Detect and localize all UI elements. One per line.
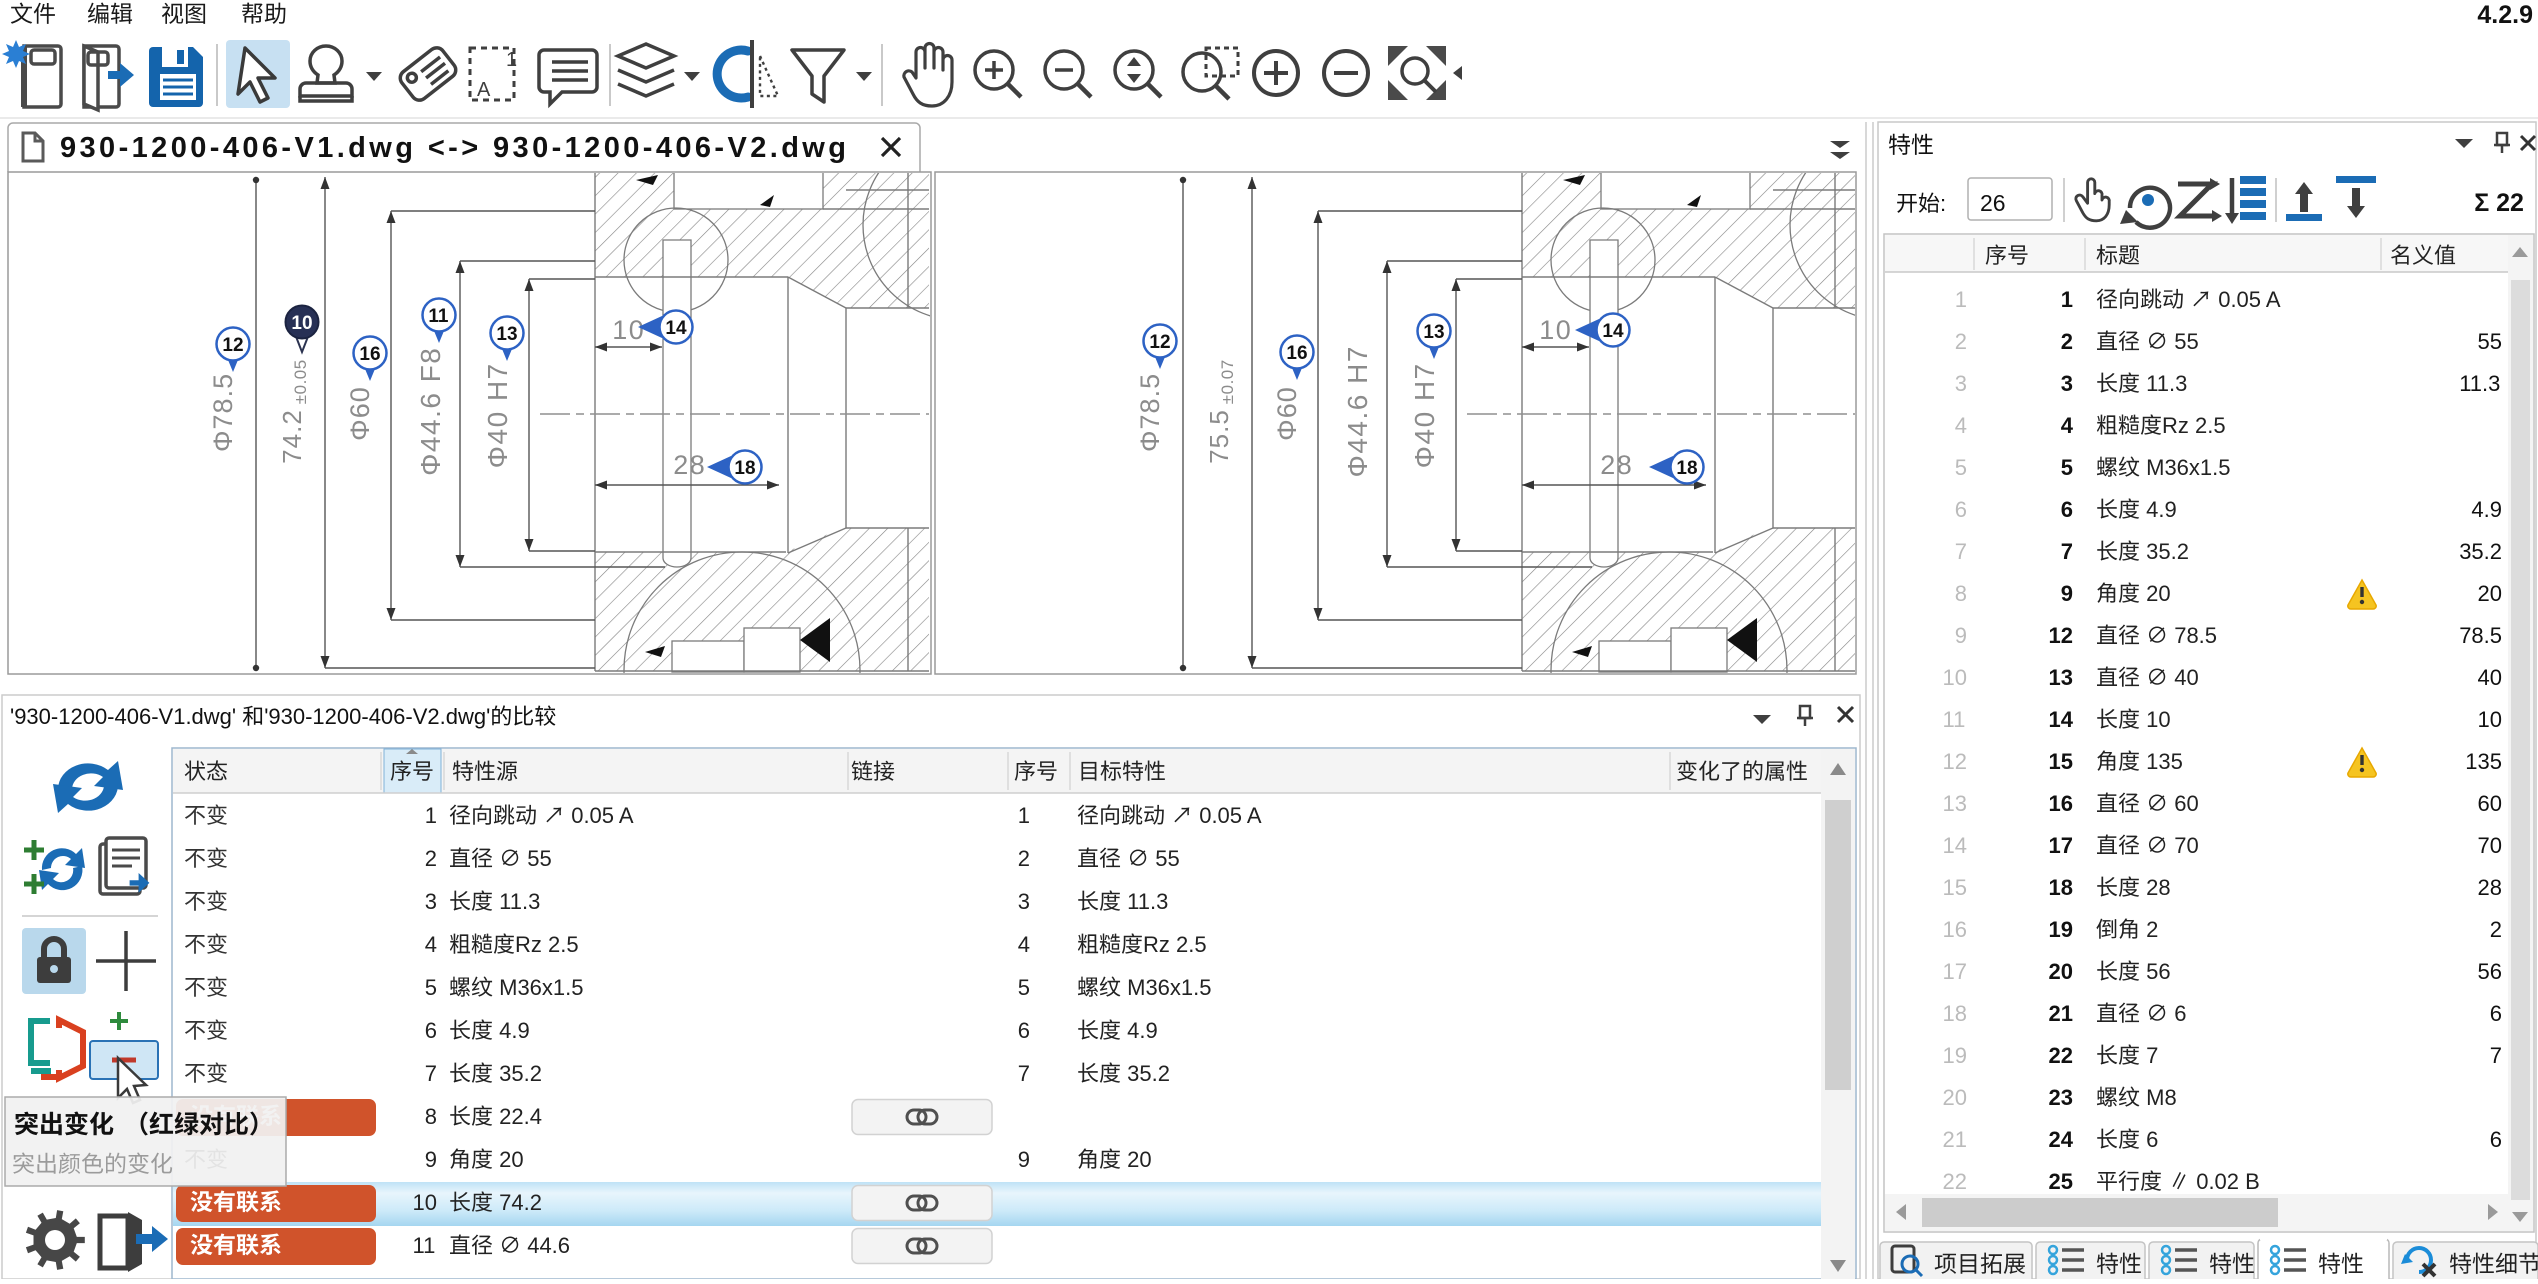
svg-text:75.5: 75.5: [1204, 409, 1234, 464]
svg-text:7: 7: [2140, 1043, 2158, 1068]
svg-text:13: 13: [2049, 665, 2073, 690]
svg-text:60: 60: [2478, 791, 2502, 816]
svg-text:2: 2: [2490, 917, 2502, 942]
svg-text:35.2: 35.2: [2140, 539, 2189, 564]
svg-text:10: 10: [1943, 665, 1967, 690]
svg-text:20: 20: [2478, 581, 2502, 606]
svg-text:6: 6: [425, 1018, 437, 1043]
svg-text:11.3: 11.3: [2459, 371, 2500, 396]
svg-text:6: 6: [1955, 497, 1967, 522]
svg-text:Φ60: Φ60: [345, 386, 375, 441]
svg-text:Rz 2.5: Rz 2.5: [515, 932, 579, 957]
svg-text:14: 14: [2049, 707, 2074, 732]
svg-text:35.2: 35.2: [2459, 539, 2502, 564]
svg-text:10: 10: [2478, 707, 2502, 732]
svg-text:Φ44.6 F8: Φ44.6 F8: [415, 347, 446, 476]
svg-text:19: 19: [2049, 917, 2073, 942]
svg-text:6: 6: [1018, 1018, 1030, 1043]
svg-text:14: 14: [1602, 321, 1624, 342]
svg-text:11: 11: [428, 306, 449, 327]
svg-text:22.4: 22.4: [493, 1104, 542, 1129]
svg-text:1: 1: [425, 803, 437, 828]
svg-text:55: 55: [2168, 329, 2199, 354]
svg-text:4.2.9: 4.2.9: [2477, 1, 2533, 29]
svg-text:5: 5: [2061, 455, 2073, 480]
svg-text:18: 18: [2049, 875, 2073, 900]
svg-text:4.9: 4.9: [2471, 497, 2502, 522]
svg-text:7: 7: [1018, 1061, 1030, 1086]
svg-text:10: 10: [2140, 707, 2171, 732]
svg-text:0.02 B: 0.02 B: [2190, 1169, 2260, 1194]
svg-text:6: 6: [2168, 1001, 2186, 1026]
svg-text:0.05 A: 0.05 A: [1193, 803, 1262, 828]
svg-text:2: 2: [1955, 329, 1967, 354]
svg-text:Rz 2.5: Rz 2.5: [1143, 932, 1207, 957]
svg-text:1: 1: [506, 49, 517, 71]
svg-text:3: 3: [1018, 889, 1030, 914]
svg-text:60: 60: [2168, 791, 2199, 816]
svg-text:74.2: 74.2: [277, 409, 307, 464]
svg-text:11: 11: [1943, 707, 1966, 732]
svg-text:56: 56: [2478, 959, 2502, 984]
svg-text:18: 18: [1676, 458, 1697, 479]
svg-text:5: 5: [1955, 455, 1967, 480]
svg-text:3: 3: [1955, 371, 1967, 396]
svg-text:12: 12: [222, 335, 243, 356]
svg-text:40: 40: [2478, 665, 2502, 690]
svg-text:2: 2: [425, 846, 437, 871]
svg-text:4.9: 4.9: [493, 1018, 530, 1043]
svg-text:28: 28: [2140, 875, 2171, 900]
svg-text:1: 1: [1955, 287, 1967, 312]
svg-text:17: 17: [2049, 833, 2073, 858]
svg-text:16: 16: [359, 344, 380, 365]
svg-text:70: 70: [2478, 833, 2502, 858]
svg-text:55: 55: [521, 846, 552, 871]
svg-text:M8: M8: [2140, 1085, 2177, 1110]
svg-text:13: 13: [1423, 322, 1444, 343]
svg-text:21: 21: [1943, 1127, 1967, 1152]
svg-text:28: 28: [1600, 450, 1633, 480]
svg-text:20: 20: [2140, 581, 2171, 606]
svg-text:5: 5: [425, 975, 437, 1000]
svg-text:18: 18: [1943, 1001, 1967, 1026]
svg-text:8: 8: [1955, 581, 1967, 606]
svg-text:3: 3: [425, 889, 437, 914]
svg-text:16: 16: [1943, 917, 1967, 942]
svg-text:28: 28: [673, 450, 706, 480]
svg-text:12: 12: [2049, 623, 2073, 648]
svg-text:Rz 2.5: Rz 2.5: [2162, 413, 2226, 438]
svg-text:±0.05: ±0.05: [291, 359, 310, 404]
svg-text:±0.07: ±0.07: [1218, 359, 1237, 404]
svg-text:2: 2: [2061, 329, 2073, 354]
svg-text:0.05 A: 0.05 A: [2212, 287, 2281, 312]
svg-text:Φ78.5: Φ78.5: [1135, 373, 1165, 452]
svg-text:17: 17: [1943, 959, 1967, 984]
svg-text:78.5: 78.5: [2459, 623, 2502, 648]
svg-text:1: 1: [2061, 287, 2073, 312]
svg-text:28: 28: [2478, 875, 2502, 900]
svg-text:A: A: [477, 79, 491, 101]
svg-text:'930-1200-406-V1.dwg': '930-1200-406-V1.dwg': [10, 704, 242, 729]
svg-text:56: 56: [2140, 959, 2171, 984]
svg-text:6: 6: [2061, 497, 2073, 522]
svg-text:9: 9: [1018, 1147, 1030, 1172]
svg-text:135: 135: [2465, 749, 2502, 774]
svg-text:11: 11: [413, 1233, 436, 1258]
svg-text:26: 26: [1980, 190, 2006, 216]
svg-text:35.2: 35.2: [1121, 1061, 1170, 1086]
svg-text:11.3: 11.3: [1121, 889, 1168, 914]
svg-text:4.9: 4.9: [1121, 1018, 1158, 1043]
svg-text:20: 20: [1943, 1085, 1967, 1110]
svg-text:135: 135: [2140, 749, 2183, 774]
svg-text:22: 22: [1943, 1169, 1967, 1194]
svg-text:14: 14: [1943, 833, 1967, 858]
svg-text:19: 19: [1943, 1043, 1967, 1068]
svg-text:16: 16: [1286, 343, 1307, 364]
svg-text:12: 12: [1149, 332, 1170, 353]
svg-text:10: 10: [291, 313, 312, 334]
svg-text:4: 4: [1018, 932, 1030, 957]
svg-text:40: 40: [2168, 665, 2199, 690]
svg-text:78.5: 78.5: [2168, 623, 2217, 648]
svg-text:'930-1200-406-V2.dwg': '930-1200-406-V2.dwg': [264, 704, 490, 729]
svg-text:15: 15: [2049, 749, 2073, 774]
svg-text:55: 55: [1149, 846, 1180, 871]
svg-text:7: 7: [2061, 539, 2073, 564]
svg-text:2: 2: [1018, 846, 1030, 871]
svg-text:20: 20: [493, 1147, 524, 1172]
svg-text:0.05 A: 0.05 A: [565, 803, 634, 828]
svg-text:11.3: 11.3: [493, 889, 540, 914]
svg-text::: :: [1940, 191, 1946, 216]
svg-text:4: 4: [2061, 413, 2074, 438]
svg-text:18: 18: [734, 458, 755, 479]
svg-text:44.6: 44.6: [521, 1233, 570, 1258]
svg-text:23: 23: [2049, 1085, 2073, 1110]
svg-text:35.2: 35.2: [493, 1061, 542, 1086]
svg-text:13: 13: [1943, 791, 1967, 816]
svg-text:8: 8: [425, 1104, 437, 1129]
svg-text:15: 15: [1943, 875, 1967, 900]
svg-text:14: 14: [665, 318, 687, 339]
svg-text:M36x1.5: M36x1.5: [1121, 975, 1212, 1000]
svg-text:4.9: 4.9: [2140, 497, 2177, 522]
svg-text:9: 9: [425, 1147, 437, 1172]
svg-text:12: 12: [1943, 749, 1967, 774]
svg-text:10: 10: [1539, 315, 1572, 345]
svg-text:1: 1: [1018, 803, 1030, 828]
svg-text:6: 6: [2490, 1127, 2502, 1152]
svg-text:5: 5: [1018, 975, 1030, 1000]
svg-text:24: 24: [2049, 1127, 2074, 1152]
svg-text:Φ40 H7: Φ40 H7: [482, 362, 513, 468]
svg-text:6: 6: [2140, 1127, 2158, 1152]
svg-text:25: 25: [2049, 1169, 2073, 1194]
svg-text:55: 55: [2478, 329, 2502, 354]
svg-text:Φ78.5: Φ78.5: [208, 373, 238, 452]
svg-text:Φ60: Φ60: [1272, 386, 1302, 441]
svg-text:M36x1.5: M36x1.5: [2140, 455, 2231, 480]
svg-text:3: 3: [2061, 371, 2073, 396]
svg-text:9: 9: [2061, 581, 2073, 606]
svg-text:M36x1.5: M36x1.5: [493, 975, 584, 1000]
svg-text:9: 9: [1955, 623, 1967, 648]
svg-text:21: 21: [2049, 1001, 2073, 1026]
svg-text:2: 2: [2140, 917, 2158, 942]
svg-text:20: 20: [2049, 959, 2073, 984]
svg-text:7: 7: [1955, 539, 1967, 564]
svg-text:13: 13: [496, 324, 517, 345]
svg-text:74.2: 74.2: [493, 1190, 542, 1215]
svg-text:16: 16: [2049, 791, 2073, 816]
svg-text:4: 4: [425, 932, 437, 957]
svg-text:10: 10: [612, 315, 645, 345]
svg-text:6: 6: [2490, 1001, 2502, 1026]
svg-text:930-1200-406-V1.dwg <-> 930-12: 930-1200-406-V1.dwg <-> 930-1200-406-V2.…: [60, 132, 849, 164]
svg-text:20: 20: [1121, 1147, 1152, 1172]
svg-text:10: 10: [413, 1190, 437, 1215]
svg-text:11.3: 11.3: [2140, 371, 2187, 396]
svg-text:Φ40 H7: Φ40 H7: [1409, 362, 1440, 468]
svg-text:22: 22: [2049, 1043, 2073, 1068]
svg-text:4: 4: [1955, 413, 1967, 438]
svg-text:Σ 22: Σ 22: [2474, 189, 2524, 217]
svg-text:70: 70: [2168, 833, 2199, 858]
svg-text:Φ44.6 H7: Φ44.6 H7: [1342, 345, 1373, 477]
svg-text:7: 7: [2490, 1043, 2502, 1068]
svg-text:7: 7: [425, 1061, 437, 1086]
